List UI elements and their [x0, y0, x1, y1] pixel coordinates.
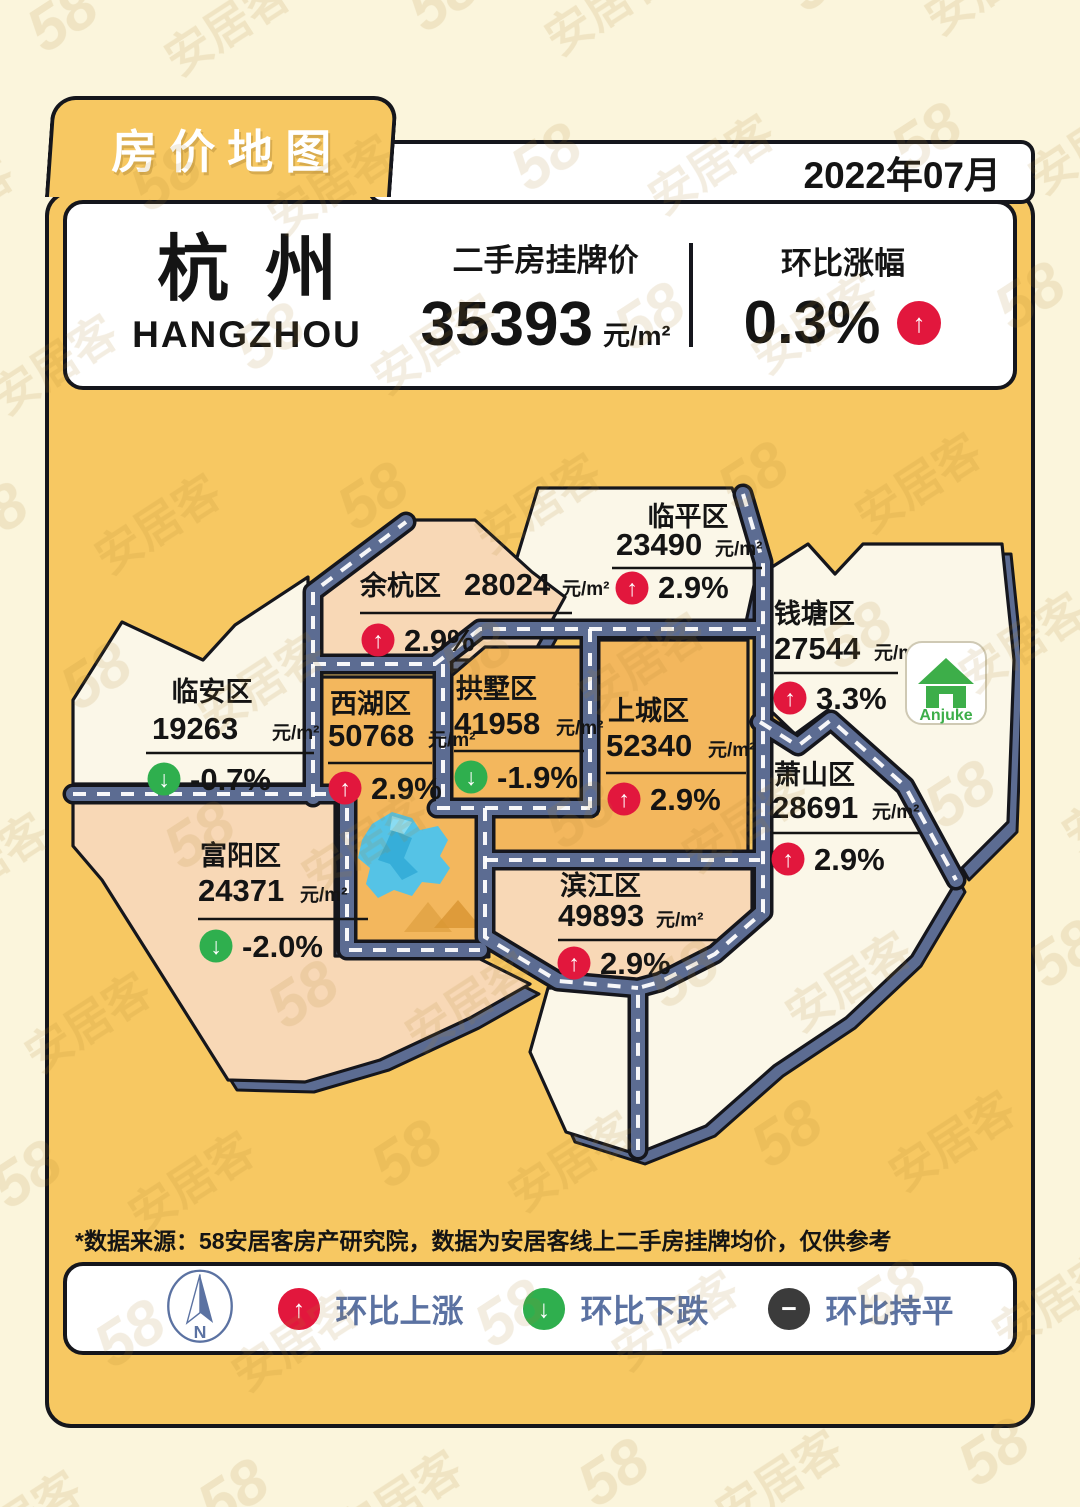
- compass: N: [152, 1267, 248, 1351]
- tab-title: 房价地图: [111, 116, 343, 182]
- svg-text:↑: ↑: [339, 775, 351, 801]
- listing-price-label: 二手房挂牌价: [402, 235, 689, 280]
- legend-item-flat: − 环比持平: [738, 1286, 983, 1332]
- legend-item-up: ↑ 环比上涨: [248, 1286, 493, 1332]
- listing-price-block: 二手房挂牌价 35393 元/m²: [402, 235, 689, 356]
- district-name: 上城区: [608, 696, 689, 726]
- district-price: 19263: [152, 711, 238, 746]
- date-bar: 2022年07月: [368, 140, 1035, 204]
- district-name: 西湖区: [330, 689, 411, 719]
- district-name: 萧山区: [774, 760, 855, 790]
- district-unit: 元/m²: [300, 885, 348, 906]
- legend-up-label: 环比上涨: [335, 1286, 463, 1332]
- district-name: 富阳区: [200, 840, 281, 871]
- district-name: 钱塘区: [774, 598, 855, 629]
- district-name: 临安区: [172, 676, 253, 707]
- legend-item-down: ↓ 环比下跌: [493, 1286, 738, 1332]
- district-unit: 元/m²: [562, 579, 610, 600]
- svg-text:−: −: [782, 1293, 798, 1323]
- svg-text:↑: ↑: [372, 627, 384, 653]
- svg-text:↑: ↑: [626, 575, 638, 601]
- svg-text:↑: ↑: [784, 685, 796, 711]
- district-price: 27544: [774, 631, 861, 666]
- district-change: 2.9%: [814, 842, 885, 877]
- district-unit: 元/m²: [708, 740, 756, 761]
- district-price: 28024: [464, 567, 551, 602]
- hangzhou-district-map: 临平区 23490 元/m² ↑ 2.9% 余杭区 28024 元/m² ↑ 2…: [60, 432, 1020, 1184]
- listing-price-unit: 元/m²: [603, 314, 671, 353]
- up-arrow-icon: ↑: [277, 1287, 321, 1331]
- district-unit: 元/m²: [556, 718, 604, 739]
- svg-text:↓: ↓: [465, 764, 477, 790]
- svg-text:↓: ↓: [210, 933, 222, 959]
- district-unit: 元/m²: [715, 539, 763, 560]
- listing-price-value: 35393: [421, 294, 593, 356]
- svg-text:↑: ↑: [293, 1295, 305, 1323]
- city-name-en: HANGZHOU: [92, 314, 402, 356]
- svg-text:↑: ↑: [618, 786, 630, 812]
- district-change: 2.9%: [650, 782, 721, 817]
- district-change: -2.0%: [242, 929, 323, 964]
- district-change: 2.9%: [371, 771, 442, 806]
- district-change: -1.9%: [497, 760, 578, 795]
- district-price: 41958: [454, 706, 540, 741]
- up-arrow-glyph: ↑: [913, 308, 926, 338]
- mom-label: 环比涨幅: [693, 238, 993, 283]
- city-name: 杭州: [92, 234, 438, 306]
- district-name: 滨江区: [560, 870, 641, 901]
- compass-needle-icon: [187, 1274, 200, 1323]
- district-name: 余杭区: [359, 570, 441, 601]
- legend-flat-label: 环比持平: [825, 1286, 953, 1332]
- district-change: 2.9%: [404, 623, 475, 658]
- mom-value: 0.3%: [744, 293, 881, 353]
- district-price: 23490: [616, 527, 702, 562]
- mom-up-badge: ↑: [896, 300, 942, 346]
- district-price: 24371: [198, 873, 284, 908]
- district-price: 28691: [772, 790, 858, 825]
- data-source-note: *数据来源：58安居客房产研究院，数据为安居客线上二手房挂牌均价，仅供参考: [75, 1222, 995, 1256]
- date-label: 2022年07月: [804, 145, 1001, 199]
- district-change: 3.3%: [816, 681, 887, 716]
- anjuke-logo: Anjuke: [906, 642, 986, 724]
- legend-down-label: 环比下跌: [580, 1286, 708, 1332]
- mom-block: 环比涨幅 0.3% ↑: [693, 238, 993, 353]
- district-change: 2.9%: [600, 946, 671, 981]
- district-change: 2.9%: [658, 570, 729, 605]
- district-change: -0.7%: [190, 762, 271, 797]
- svg-text:↑: ↑: [782, 846, 794, 872]
- svg-text:↓: ↓: [538, 1295, 550, 1323]
- district-unit: 元/m²: [656, 910, 704, 931]
- svg-text:↑: ↑: [568, 950, 580, 976]
- district-unit: 元/m²: [272, 723, 320, 744]
- district-price: 49893: [558, 898, 644, 933]
- anjuke-logo-text: Anjuke: [919, 707, 972, 724]
- minus-icon: −: [767, 1287, 811, 1331]
- price-map-tab: 房价地图: [45, 96, 398, 197]
- city-block: 杭州 HANGZHOU: [92, 234, 402, 356]
- district-price: 50768: [328, 718, 414, 753]
- svg-text:↓: ↓: [158, 766, 170, 792]
- compass-north-label: N: [194, 1321, 207, 1341]
- price-map-poster: { "header": { "tab_title": "房价地图", "date…: [0, 0, 1080, 1507]
- down-arrow-icon: ↓: [522, 1287, 566, 1331]
- district-unit: 元/m²: [872, 802, 920, 823]
- district-price: 52340: [606, 728, 692, 763]
- summary-card: 杭州 HANGZHOU 二手房挂牌价 35393 元/m² 环比涨幅 0.3% …: [63, 200, 1017, 390]
- compass-needle-icon: [200, 1274, 213, 1323]
- legend-bar: N ↑ 环比上涨 ↓ 环比下跌 − 环比持平: [63, 1262, 1017, 1355]
- district-name: 拱墅区: [456, 674, 537, 704]
